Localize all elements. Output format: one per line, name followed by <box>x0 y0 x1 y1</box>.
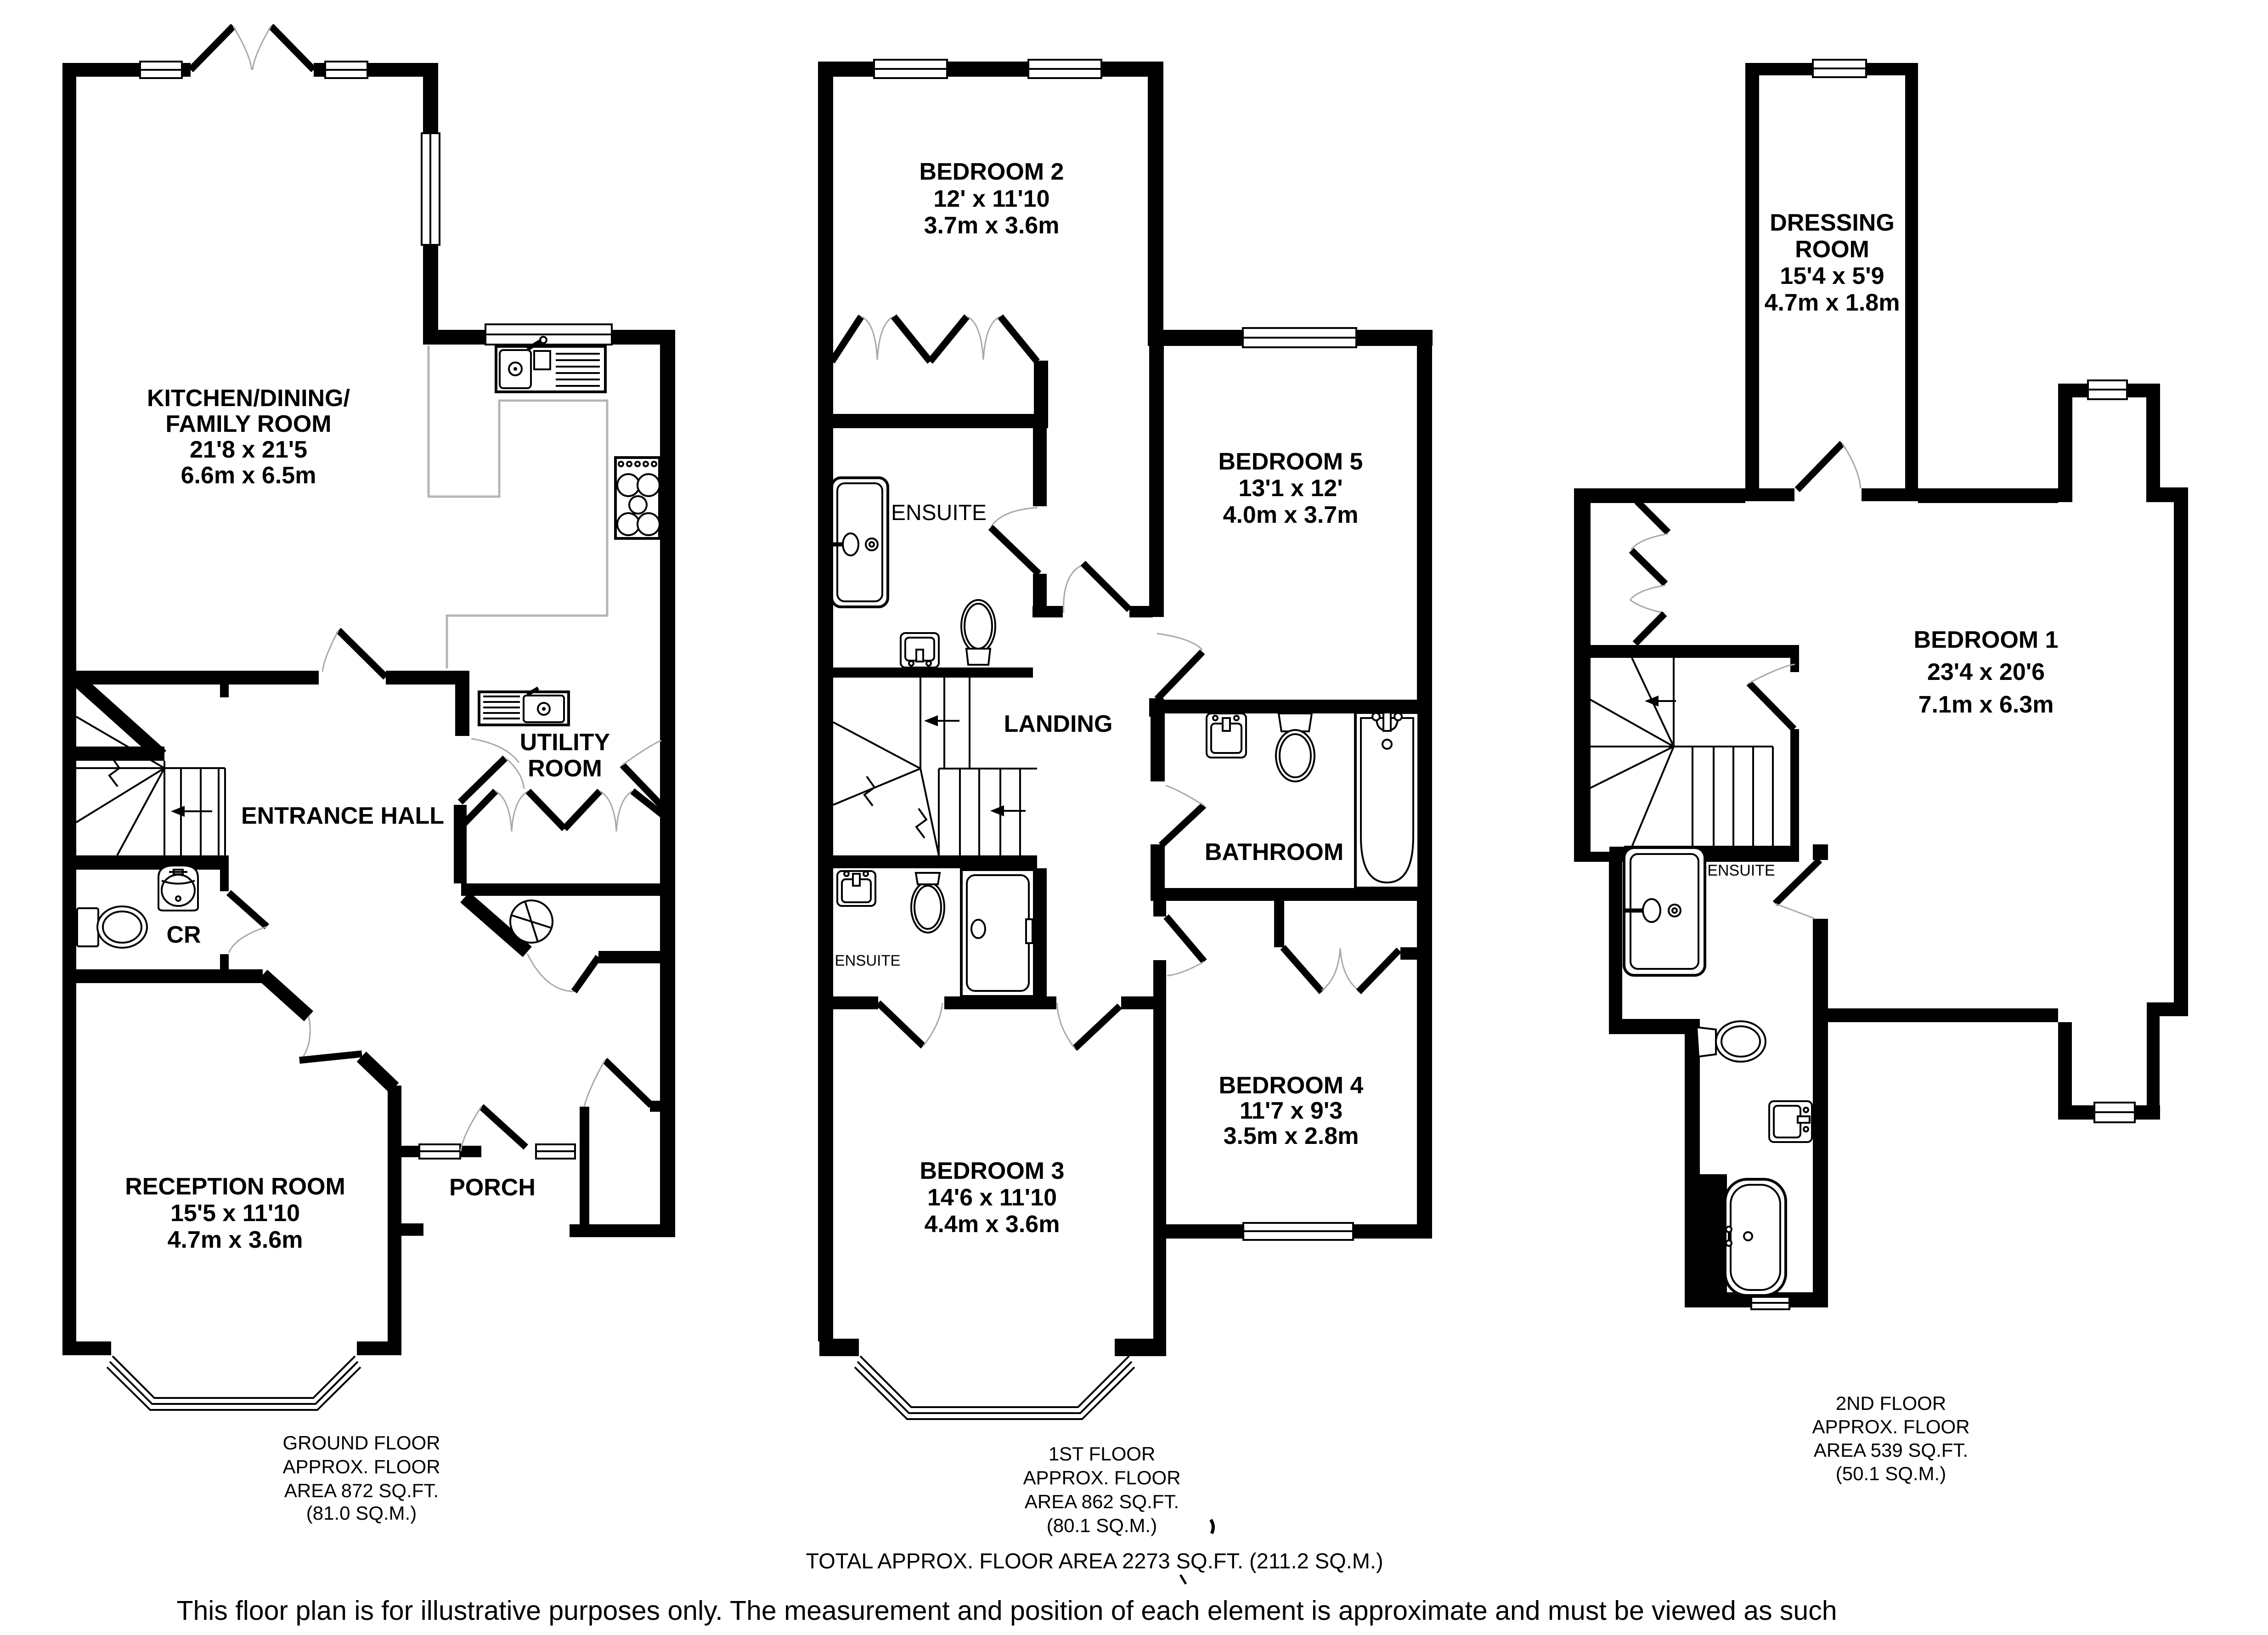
svg-text:BATHROOM: BATHROOM <box>1205 839 1343 866</box>
svg-text:APPROX. FLOOR: APPROX. FLOOR <box>282 1456 440 1477</box>
svg-text:14'6 x 11'10: 14'6 x 11'10 <box>927 1184 1057 1211</box>
svg-text:APPROX. FLOOR: APPROX. FLOOR <box>1812 1416 1969 1437</box>
svg-text:15'5 x 11'10: 15'5 x 11'10 <box>170 1200 300 1227</box>
svg-text:UTILITY: UTILITY <box>520 729 610 756</box>
svg-text:AREA 872 SQ.FT.: AREA 872 SQ.FT. <box>284 1480 439 1501</box>
svg-text:BEDROOM 3: BEDROOM 3 <box>920 1158 1065 1184</box>
svg-text:4.7m x 1.8m: 4.7m x 1.8m <box>1765 289 1900 316</box>
svg-text:BEDROOM 1: BEDROOM 1 <box>1914 627 2059 653</box>
svg-text:This floor plan is for illustr: This floor plan is for illustrative purp… <box>176 1595 1837 1626</box>
svg-text:(50.1 SQ.M.): (50.1 SQ.M.) <box>1836 1463 1946 1484</box>
svg-text:PORCH: PORCH <box>449 1174 536 1201</box>
svg-text:12' x 11'10: 12' x 11'10 <box>933 186 1049 212</box>
svg-text:13'1 x 12': 13'1 x 12' <box>1238 475 1343 502</box>
svg-text:APPROX. FLOOR: APPROX. FLOOR <box>1023 1467 1180 1488</box>
svg-text:BEDROOM 5: BEDROOM 5 <box>1219 448 1363 475</box>
svg-text:ENSUITE: ENSUITE <box>1707 862 1775 879</box>
svg-text:LANDING: LANDING <box>1004 711 1113 737</box>
svg-text:4.0m x 3.7m: 4.0m x 3.7m <box>1223 502 1359 528</box>
svg-text:ROOM: ROOM <box>1795 236 1869 263</box>
svg-text:ROOM: ROOM <box>528 755 602 782</box>
svg-text:TOTAL APPROX. FLOOR AREA 2273: TOTAL APPROX. FLOOR AREA 2273 SQ.FT. (21… <box>806 1549 1383 1573</box>
svg-text:23'4 x 20'6: 23'4 x 20'6 <box>1927 659 2045 685</box>
svg-text:21'8 x 21'5: 21'8 x 21'5 <box>190 436 307 463</box>
svg-text:ENSUITE: ENSUITE <box>891 501 987 525</box>
svg-text:1ST FLOOR: 1ST FLOOR <box>1049 1443 1156 1465</box>
svg-text:BEDROOM 2: BEDROOM 2 <box>920 158 1064 185</box>
svg-text:(81.0 SQ.M.): (81.0 SQ.M.) <box>306 1502 417 1524</box>
svg-text:AREA 862 SQ.FT.: AREA 862 SQ.FT. <box>1025 1491 1179 1512</box>
svg-text:3.5m x 2.8m: 3.5m x 2.8m <box>1224 1123 1359 1149</box>
svg-text:ENTRANCE HALL: ENTRANCE HALL <box>241 803 444 829</box>
svg-text:CR: CR <box>166 922 201 948</box>
svg-text:4.4m x 3.6m: 4.4m x 3.6m <box>925 1211 1060 1238</box>
svg-text:4.7m x 3.6m: 4.7m x 3.6m <box>168 1227 303 1253</box>
svg-text:7.1m x 6.3m: 7.1m x 6.3m <box>1918 691 2054 718</box>
svg-text:2ND FLOOR: 2ND FLOOR <box>1836 1392 1946 1414</box>
svg-text:3.7m x 3.6m: 3.7m x 3.6m <box>924 212 1060 239</box>
svg-text:RECEPTION ROOM: RECEPTION ROOM <box>125 1173 345 1200</box>
svg-text:11'7 x 9'3: 11'7 x 9'3 <box>1240 1098 1343 1124</box>
svg-text:GROUND FLOOR: GROUND FLOOR <box>282 1432 440 1454</box>
svg-text:DRESSING: DRESSING <box>1770 209 1895 236</box>
svg-text:ENSUITE: ENSUITE <box>835 952 900 969</box>
svg-text:BEDROOM 4: BEDROOM 4 <box>1219 1072 1364 1099</box>
svg-text:KITCHEN/DINING/: KITCHEN/DINING/ <box>147 385 350 412</box>
svg-text:15'4 x 5'9: 15'4 x 5'9 <box>1780 263 1884 289</box>
svg-text:6.6m x 6.5m: 6.6m x 6.5m <box>181 462 316 489</box>
svg-text:AREA 539 SQ.FT.: AREA 539 SQ.FT. <box>1814 1439 1968 1461</box>
svg-text:(80.1 SQ.M.): (80.1 SQ.M.) <box>1047 1515 1157 1536</box>
svg-text:FAMILY ROOM: FAMILY ROOM <box>165 411 331 437</box>
